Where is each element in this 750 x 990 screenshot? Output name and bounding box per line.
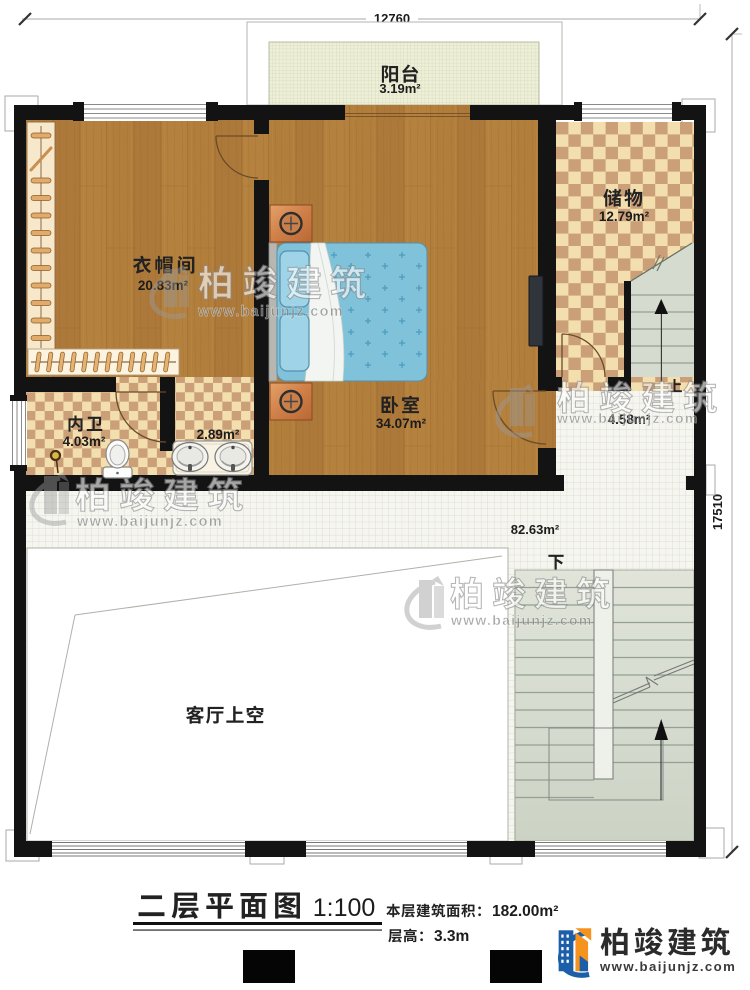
svg-text:www.baijunjz.com: www.baijunjz.com	[197, 304, 344, 320]
svg-text:www.baijunjz.com: www.baijunjz.com	[556, 410, 699, 426]
svg-text:2.89m²: 2.89m²	[197, 427, 240, 442]
svg-text:4.03m²: 4.03m²	[63, 434, 106, 449]
svg-text:12.79m²: 12.79m²	[599, 209, 650, 224]
svg-text:www.baijunjz.com: www.baijunjz.com	[76, 514, 223, 530]
svg-text:1:100: 1:100	[313, 894, 376, 922]
svg-text:17510: 17510	[710, 494, 725, 530]
svg-text:3.19m²: 3.19m²	[379, 81, 421, 96]
svg-text:www.baijunjz.com: www.baijunjz.com	[599, 959, 736, 974]
svg-text:82.63m²: 82.63m²	[511, 522, 560, 537]
svg-text:34.07m²: 34.07m²	[376, 416, 427, 431]
svg-text:182.00m²: 182.00m²	[492, 903, 558, 920]
svg-text:www.baijunjz.com: www.baijunjz.com	[450, 612, 593, 628]
svg-text:3.3m: 3.3m	[434, 928, 469, 945]
